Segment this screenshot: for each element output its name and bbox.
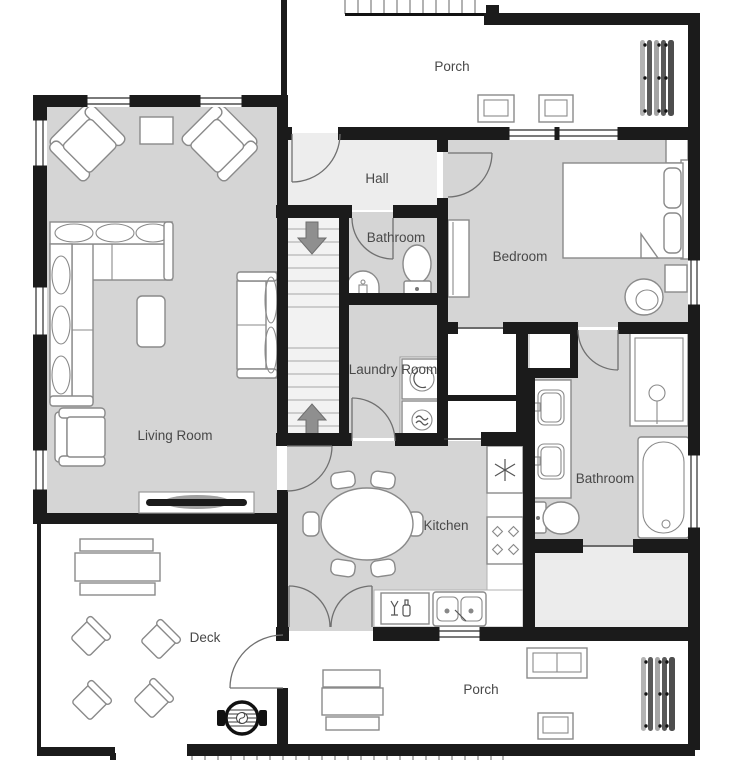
label-hall: Hall — [365, 171, 388, 186]
label-laundry-room: Laundry Room — [349, 362, 438, 377]
window — [33, 285, 47, 337]
porch-swing — [640, 40, 674, 116]
toilet-icon — [531, 502, 579, 534]
window — [437, 627, 482, 641]
side-table — [140, 117, 173, 144]
bench — [80, 583, 155, 595]
table — [322, 688, 383, 715]
bed — [563, 160, 689, 259]
deck-chair — [132, 677, 174, 719]
dishwasher-icon — [381, 593, 429, 624]
label-bedroom: Bedroom — [493, 249, 548, 264]
bedroom-chair — [625, 279, 663, 315]
closet-small — [530, 332, 570, 370]
window — [688, 258, 700, 307]
grill-icon — [217, 702, 267, 734]
shower — [630, 333, 688, 426]
porch-sofa — [527, 648, 587, 678]
window — [33, 118, 47, 168]
fireplace — [139, 492, 254, 513]
window — [198, 95, 244, 107]
porch-chair — [538, 713, 573, 739]
deck-chair — [139, 618, 181, 660]
fridge-icon — [487, 446, 523, 493]
table — [75, 553, 160, 581]
label-bathroom-main: Bathroom — [576, 471, 635, 486]
bench — [326, 717, 379, 730]
door-deck — [230, 635, 283, 688]
bench — [323, 670, 380, 687]
window — [557, 127, 620, 140]
porch-chair — [539, 95, 573, 122]
loveseat — [237, 272, 277, 378]
porch-top-furniture — [478, 40, 674, 122]
label-porch-bottom: Porch — [463, 682, 498, 697]
window — [688, 453, 700, 530]
window — [507, 127, 557, 140]
label-kitchen: Kitchen — [423, 518, 468, 533]
deck-chair — [70, 679, 112, 721]
window — [33, 448, 47, 492]
window — [85, 95, 132, 107]
nightstand — [665, 265, 687, 292]
room-hall — [287, 133, 437, 210]
bathtub — [638, 437, 689, 538]
toilet-icon — [403, 245, 431, 297]
wardrobe — [448, 220, 469, 297]
label-living-room: Living Room — [137, 428, 212, 443]
vanity-double-sink — [529, 380, 571, 498]
label-bathroom-small: Bathroom — [367, 230, 426, 245]
porch-chair — [478, 95, 514, 122]
deck-chair — [69, 615, 111, 657]
kitchen-sink-icon — [433, 592, 486, 626]
armchair — [55, 408, 105, 466]
floor-plan-svg: Porch Hall Bathroom Bedroom Laundry Room… — [0, 0, 745, 760]
porch-swing — [641, 657, 675, 731]
label-porch-top: Porch — [434, 59, 469, 74]
room-storage — [530, 547, 690, 631]
label-deck: Deck — [190, 630, 221, 645]
deck-furniture — [69, 539, 267, 734]
exterior-stairs-top — [345, 0, 499, 16]
floor-plan-page: Porch Hall Bathroom Bedroom Laundry Room… — [0, 0, 745, 760]
bench — [80, 539, 153, 551]
stove-icon — [487, 517, 523, 564]
coffee-table — [137, 296, 165, 347]
